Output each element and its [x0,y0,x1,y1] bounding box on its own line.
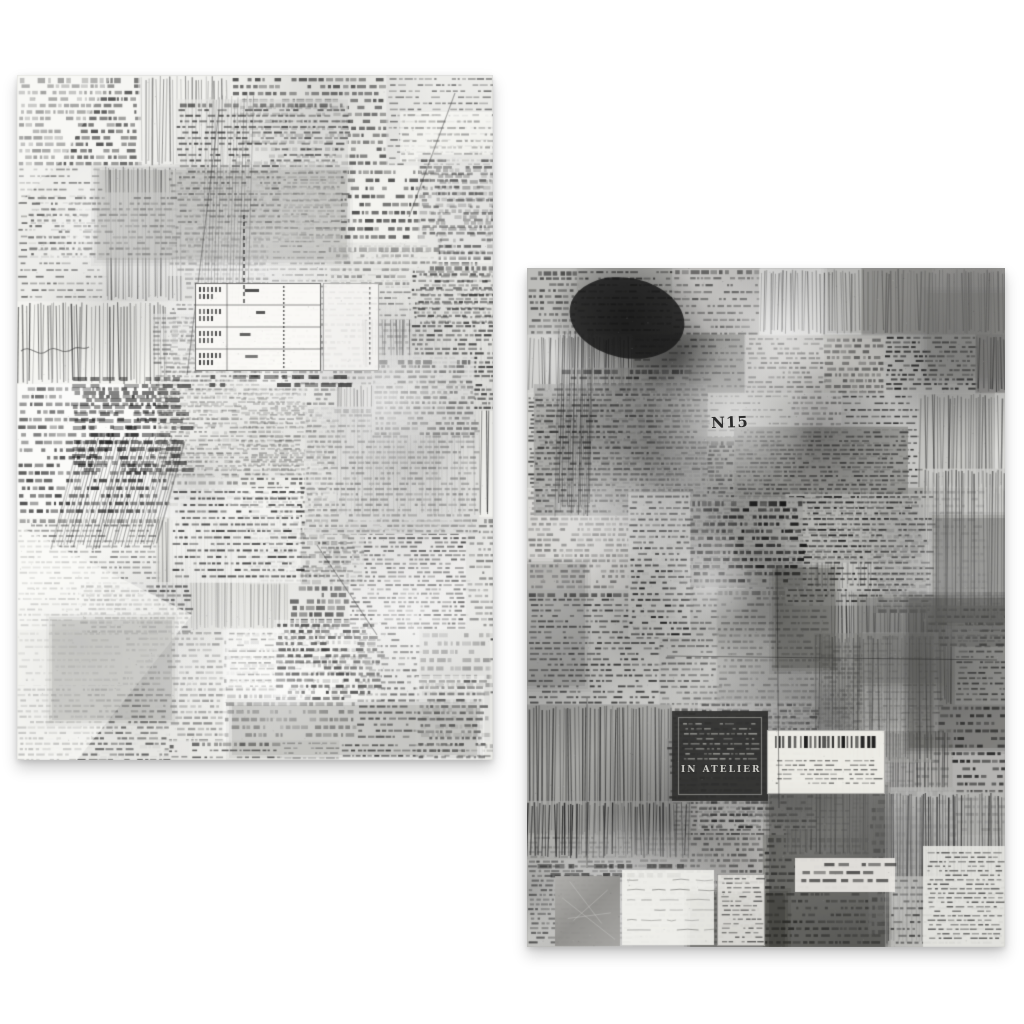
collage-texture-dark [527,268,1005,947]
collage-sheet-light [17,75,493,760]
collage-sheet-dark: N15 IN ATELIER [527,268,1005,947]
two-piece-newsprint-collage-artwork: N15 IN ATELIER [0,0,1024,1024]
collage-texture-light [17,75,493,760]
